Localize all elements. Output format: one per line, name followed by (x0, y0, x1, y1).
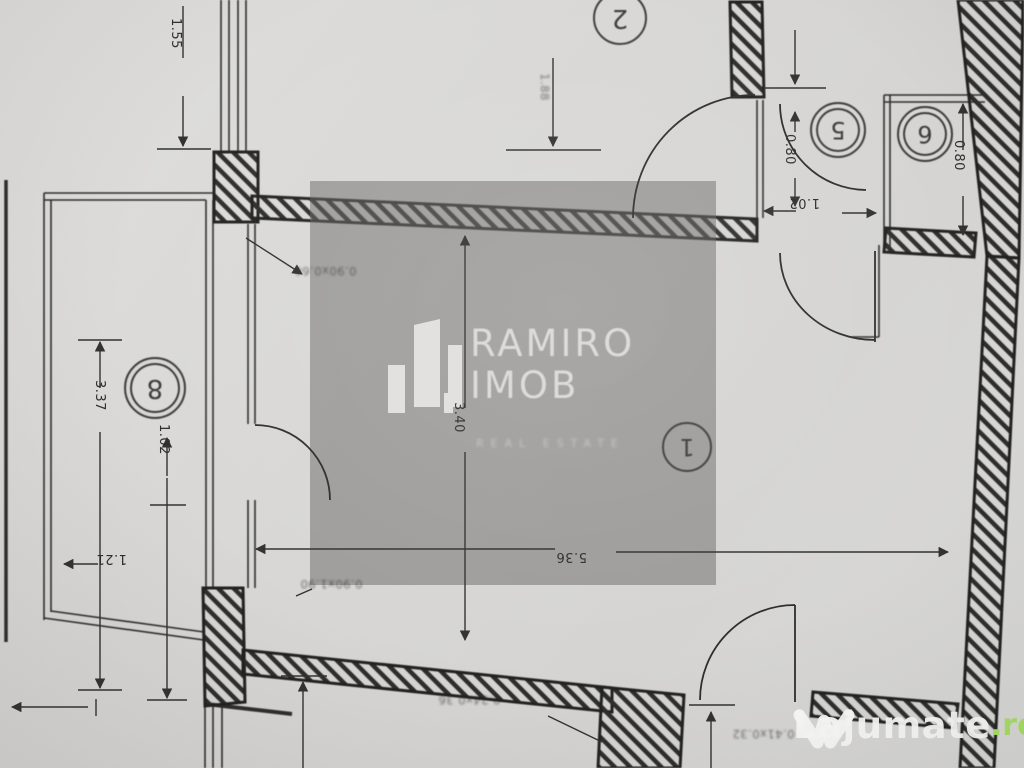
size-annotation: 0.24x0.36 (438, 693, 501, 707)
dimension-label: 3.37 (92, 380, 107, 411)
annotation-leader (548, 716, 602, 742)
door-arcs (255, 95, 875, 702)
door-arc-bottom (700, 605, 795, 702)
door-arc-hall (255, 425, 330, 500)
lajumate-wordmark: Lajumate (793, 704, 991, 747)
room-number-8: 8 (124, 357, 186, 419)
size-annotation: 0.41x0.32 (732, 727, 795, 741)
floor-plan-photo: RAMIRO IMOB REAL ESTATE (0, 0, 1024, 768)
dimension-label: 5.36 (556, 549, 587, 564)
dimension-label: 3.40 (451, 402, 466, 433)
dimension-label: 0.80 (782, 134, 797, 165)
dimension-label: 1.02 (156, 424, 171, 455)
size-annotation: 0.90x1.90 (300, 577, 363, 591)
dimension-label: 0.80 (951, 140, 966, 171)
dimension-label: 1.88 (538, 73, 552, 101)
room-number-6: 6 (897, 106, 953, 162)
dimension-label: 1.21 (96, 551, 127, 566)
lajumate-logo: Lajumate .ro (793, 704, 1024, 747)
dimension-label: 1.02 (789, 195, 820, 210)
room-number-1: 1 (662, 422, 712, 472)
size-annotation: 0.90x0.60 (294, 264, 357, 278)
door-arc-room6-entry (780, 251, 875, 342)
lajumate-tld: .ro (991, 708, 1024, 743)
door-arc-room2 (633, 95, 755, 218)
room-number-5: 5 (810, 102, 866, 158)
dimension-label: 1.55 (168, 18, 183, 49)
